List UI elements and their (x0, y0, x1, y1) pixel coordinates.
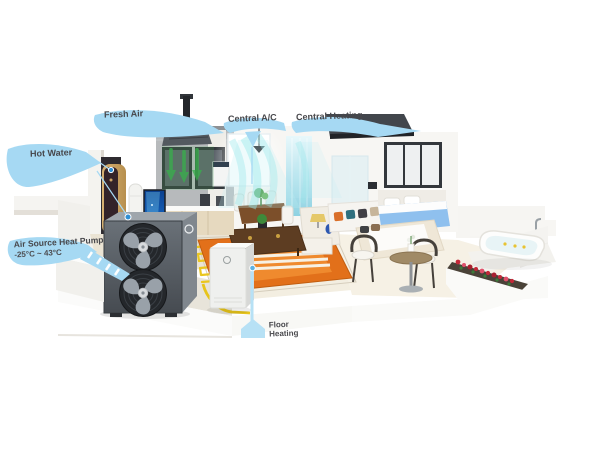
fresh-air-green-arrows (162, 146, 214, 190)
marker-floor-heating (250, 265, 256, 271)
marker-heat-pump (125, 214, 131, 220)
marker-hot-water (108, 167, 113, 172)
house-cutaway-illustration (0, 0, 600, 450)
label-central-ac: Central A/C (228, 112, 277, 124)
bedroom-window (384, 142, 442, 191)
coffee-machine (200, 194, 210, 207)
heat-pump-house-infographic: Fresh Air Central A/C Central Heating Ho… (0, 0, 600, 450)
wall-thermostat (368, 182, 377, 189)
fan-top (120, 224, 167, 272)
table-lamp (310, 214, 326, 222)
hydronic-module (210, 243, 254, 308)
label-hot-water: Hot Water (30, 147, 73, 159)
coffee-table-plant (257, 214, 267, 224)
leader-floor-heating (251, 270, 254, 322)
label-floor-heating: Floor Heating (269, 320, 299, 339)
heat-pump-outdoor-unit (104, 212, 197, 317)
label-floor-heating-line2: Heating (269, 329, 299, 339)
label-fresh-air: Fresh Air (104, 108, 144, 120)
